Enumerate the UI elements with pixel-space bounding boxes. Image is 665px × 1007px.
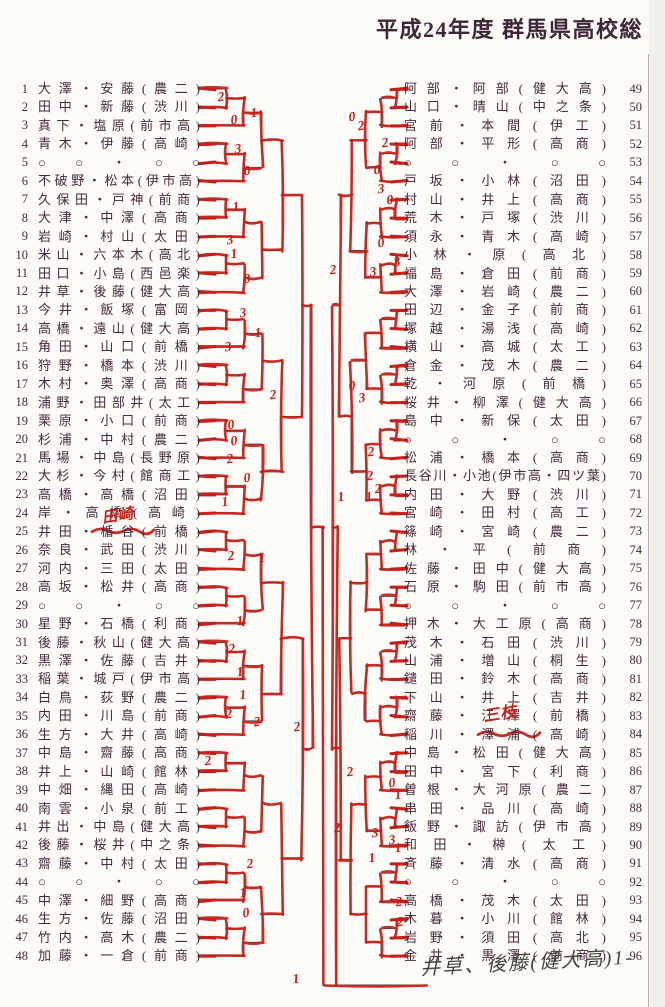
bracket-entry: 11田口・小島(西邑楽) [6,265,200,283]
entry-name: 和田・榊(太工) [404,836,606,854]
entry-number: 61 [614,303,642,318]
bracket-entry: 乾・河原(前橋)65 [404,375,642,393]
entry-name: 大杉・今村(館商工) [38,467,200,485]
bracket-entry: ○○・○○77 [404,597,642,615]
entry-name: 田口・小島(西邑楽) [38,265,200,283]
entry-number: 49 [614,82,642,97]
entry-name: 加藤・一倉(前商) [38,947,200,965]
entry-name: 田中・新藤(渋川) [38,98,200,116]
entry-name: 河内・三田(太田) [38,560,200,578]
entry-name: 高橋・遠山(健大高) [38,320,200,338]
entry-number: 27 [6,561,28,576]
entry-name: 浦野・田部井(太工) [38,394,200,412]
handwritten-score: 3 [377,181,386,198]
entry-name: 高橋・茂木(太田) [404,892,606,910]
handwritten-score: 0 [243,163,252,180]
entry-name: 山浦・増山(桐生) [404,652,606,670]
entry-name: 押木・大工原(高商) [404,615,606,633]
handwritten-score: 2 [226,451,235,468]
entry-number: 1 [6,82,28,97]
scanned-tournament-sheet: 平成24年度 群馬県高校総 1大澤・安藤(農二)2田中・新藤(渋川)3真下・塩原… [0,0,665,1007]
entry-name: 今井・飯塚(富岡) [38,301,200,319]
bracket-entry: 35内田・川島(前商) [6,707,200,725]
entry-name: 大澤・安藤(農二) [38,80,200,98]
handwritten-score: 2 [374,481,383,498]
entry-number: 16 [6,358,28,373]
entry-number: 37 [6,746,28,761]
handwritten-score: 2 [346,764,355,781]
entry-name: 塚越・湯浅(高崎) [404,320,606,338]
bracket-entry: 36生方・大井(高崎) [6,726,200,744]
handwritten-score: 2 [367,444,376,461]
entry-name: 鑓田・鈴木(高商) [404,670,606,688]
entry-name: 阿部・阿部(健大高) [404,80,606,98]
handwritten-score: 3 [224,339,233,356]
entry-number: 88 [614,801,642,816]
entry-number: 65 [614,377,642,392]
entry-number: 14 [6,321,28,336]
handwritten-score: 3 [369,264,378,281]
bracket-entry: 山口・晴山(中之条)50 [404,98,642,116]
entry-name: 狩野・橋本(渋川) [38,357,200,375]
entry-number: 32 [6,653,28,668]
handwritten-score: 2 [227,548,236,565]
entry-name: 大澤・岩崎(農二) [404,283,606,301]
entry-number: 6 [6,174,28,189]
entry-number: 38 [6,764,28,779]
bracket-entry: 茂木・石田(渋川)79 [404,634,642,652]
entry-name: 木暮・小川(館林) [404,910,606,928]
bracket-entry: 3真下・塩原(前市高) [6,117,200,135]
entry-name: 島中・新保(太田) [404,412,606,430]
entry-number: 13 [6,303,28,318]
handwritten-score: 2 [293,719,302,736]
entry-number: 51 [614,118,642,133]
entry-number: 28 [6,580,28,595]
entry-number: 71 [614,487,642,502]
entry-name: 石原・駒田(前市高) [404,578,606,596]
bracket-entry: 押木・大工原(高商)78 [404,615,642,633]
entry-name: 茂木・石田(渋川) [404,634,606,652]
bracket-entry: 下山・井上(吉井)82 [404,689,642,707]
entry-number: 57 [614,229,642,244]
entry-number: 87 [614,783,642,798]
bracket-entry: 1大澤・安藤(農二) [6,80,200,98]
entry-number: 83 [614,709,642,724]
handwritten-score: 0 [377,235,386,252]
bracket-entry: 34白鳥・荻野(農二) [6,689,200,707]
entry-number: 54 [614,174,642,189]
entry-name: 不破野・松本(伊市高) [38,172,200,190]
handwritten-score: 2 [225,706,234,723]
entry-name: 木村・奥澤(高商) [38,375,200,393]
bracket-entry: 2田中・新藤(渋川) [6,98,200,116]
bracket-entry: 47竹内・高木(農二) [6,929,200,947]
bracket-entry: 13今井・飯塚(富岡) [6,301,200,319]
bracket-entry: 阿部・阿部(健大高)49 [404,80,642,98]
bracket-entry: 稲川・澤浦(高崎)84 [404,726,642,744]
bracket-entry: 曽根・大河原(農二)87 [404,781,642,799]
entry-name: 黒澤・佐藤(吉井) [38,652,200,670]
entry-number: 73 [614,524,642,539]
bracket-entry: 21馬場・中島(長野原) [6,449,200,467]
entry-number: 50 [614,100,642,115]
bracket-entry: 島中・新保(太田)67 [404,412,642,430]
handwritten-score: 3 [393,254,402,271]
handwritten-score: 2 [357,118,366,135]
entry-number: 47 [6,930,28,945]
bracket-entry: ○○・○○92 [404,873,642,891]
entry-number: 26 [6,543,28,558]
entry-name: ○○・○○ [38,597,200,615]
bracket-entry: 10米山・六本木(高北) [6,246,200,264]
bracket-entry: 松浦・橋本(高商)69 [404,449,642,467]
entry-number: 7 [6,192,28,207]
entry-number: 85 [614,746,642,761]
entry-number: 56 [614,211,642,226]
entry-name: 馬場・中島(長野原) [38,449,200,467]
bracket-entry: 戸坂・小林(沼田)54 [404,172,642,190]
bracket-entry: 42後藤・桜井(中之条) [6,836,200,854]
entry-number: 84 [614,727,642,742]
entry-number: 40 [6,801,28,816]
entry-number: 89 [614,820,642,835]
entry-name: 戸坂・小林(沼田) [404,172,606,190]
entry-number: 39 [6,783,28,798]
bracket-entry: 宮崎・田村(高工)72 [404,504,642,522]
entry-name: 佐藤・田中(健大高) [404,560,606,578]
handwritten-score: 3 [371,825,380,842]
bracket-entry: 20杉浦・中村(農二) [6,431,200,449]
entry-number: 81 [614,672,642,687]
entry-number: 12 [6,284,28,299]
handwritten-score: 0 [230,433,239,450]
entry-number: 43 [6,856,28,871]
bracket-entry: 阿部・平形(高商)52 [404,135,642,153]
entry-number: 18 [6,395,28,410]
bracket-entry: 31後藤・秋山(健大高) [6,634,200,652]
entry-name: 内田・川島(前商) [38,707,200,725]
bracket-entry: 宮前・本間(伊工)51 [404,117,642,135]
bracket-entry: 大澤・岩崎(農二)60 [404,283,642,301]
entry-number: 31 [6,635,28,650]
entry-name: 星野・石橋(利商) [38,615,200,633]
handwritten-score: 0 [348,378,357,395]
bracket-entry: 佐藤・田中(健大高)75 [404,560,642,578]
entry-number: 15 [6,340,28,355]
entry-number: 30 [6,617,28,632]
entry-name: 稲葉・城戸(伊市高) [38,670,200,688]
bracket-entry: 高橋・茂木(太田)93 [404,892,642,910]
bracket-entry: 26奈良・武田(渋川) [6,541,200,559]
bracket-entry: 23高橋・高橋(沼田) [6,486,200,504]
bracket-entry: ○○・○○68 [404,431,642,449]
handwritten-score: 2 [217,89,226,106]
entry-number: 4 [6,137,28,152]
entry-name: 長谷川・小池(伊市高・四ツ葉) [404,467,606,485]
entry-name: 田辺・金子(前商) [404,301,606,319]
entry-number: 25 [6,524,28,539]
entry-number: 67 [614,414,642,429]
bracket-entry: 15角田・山口(前橋) [6,338,200,356]
entry-name: 小林・原(高北) [404,246,606,264]
entry-number: 24 [6,506,28,521]
entry-number: 66 [614,395,642,410]
entry-number: 29 [6,598,28,613]
bracket-entry: 田中・宮下(利商)86 [404,763,642,781]
bracket-entry: 荒木・戸塚(渋川)56 [404,209,642,227]
entry-number: 77 [614,598,642,613]
bracket-entry: 28高坂・松井(高商) [6,578,200,596]
bracket-entry: 44○○・○○ [6,873,200,891]
bracket-entry: 村山・井上(高商)55 [404,191,642,209]
bracket-entry: 福島・倉田(前商)59 [404,265,642,283]
entry-name: 福島・倉田(前商) [404,265,606,283]
entry-name: 後藤・桜井(中之条) [38,836,200,854]
bracket-entry: 46生方・佐藤(沼田) [6,910,200,928]
handwritten-score: 2 [228,641,237,658]
entry-number: 23 [6,487,28,502]
entry-number: 17 [6,377,28,392]
bracket-entry: 45中澤・細野(高商) [6,892,200,910]
bracket-entry: 田辺・金子(前商)61 [404,301,642,319]
entry-name: 倉金・茂木(農二) [404,357,606,375]
entry-name: 井草・後藤(健大高) [38,283,200,301]
entry-name: 高橋・高橋(沼田) [38,486,200,504]
bracket-entry: 38井上・山崎(館林) [6,763,200,781]
entry-name: 奈良・武田(渋川) [38,541,200,559]
entry-name: 後藤・秋山(健大高) [38,634,200,652]
bracket-entry: 飯野・諏訪(伊市高)89 [404,818,642,836]
entry-number: 10 [6,248,28,263]
bracket-entry: 48加藤・一倉(前商) [6,947,200,965]
bracket-entry: 倉金・茂木(農二)64 [404,357,642,375]
bracket-entry: 須永・青木(高崎)57 [404,228,642,246]
handwritten-score: 2 [396,914,405,931]
entry-name: 桜井・柳澤(健大高) [404,394,606,412]
bracket-entry: 山浦・増山(桐生)80 [404,652,642,670]
entry-name: 竹内・高木(農二) [38,929,200,947]
entry-number: 93 [614,893,642,908]
bracket-entry: 37中島・齋藤(高商) [6,744,200,762]
entry-number: 41 [6,820,28,835]
entry-name: 荒木・戸塚(渋川) [404,209,606,227]
bracket-entry: 小林・原(高北)58 [404,246,642,264]
bracket-entry: 16狩野・橋本(渋川) [6,357,200,375]
entry-number: 79 [614,635,642,650]
handwritten-score: 2 [253,714,262,731]
bracket-entry: 33稲葉・城戸(伊市高) [6,670,200,688]
handwritten-score: 0 [373,162,382,179]
entry-name: 中澤・細野(高商) [38,892,200,910]
entry-number: 20 [6,432,28,447]
handwritten-score: 3 [234,141,243,158]
entry-name: 山口・晴山(中之条) [404,98,606,116]
entry-name: 南雲・小泉(前工) [38,800,200,818]
entry-name: 生方・大井(高崎) [38,726,200,744]
entry-name: 松浦・橋本(高商) [404,449,606,467]
bracket-entry: 桜井・柳澤(健大高)66 [404,394,642,412]
entry-number: 19 [6,414,28,429]
bracket-entry: ○○・○○53 [404,154,642,172]
entry-name: 大津・中澤(高商) [38,209,200,227]
entry-number: 82 [614,690,642,705]
bracket-entry: 串田・品川(高崎)88 [404,800,642,818]
entry-number: 45 [6,893,28,908]
entry-name: 内田・大野(渋川) [404,486,606,504]
entry-name: 生方・佐藤(沼田) [38,910,200,928]
entry-name: 田中・宮下(利商) [404,763,606,781]
bracket-entry: 30星野・石橋(利商) [6,615,200,633]
handwritten-score: 2 [381,135,390,152]
bracket-entry: 9岩崎・村山(太田) [6,228,200,246]
entry-number: 59 [614,266,642,281]
entry-number: 52 [614,137,642,152]
entry-name: 井出・中島(健大高) [38,818,200,836]
entry-name: 村山・井上(高商) [404,191,606,209]
bracket-entry: 29○○・○○ [6,597,200,615]
bracket-entry: 4青木・伊藤(高崎) [6,135,200,153]
entry-name: ○○・○○ [38,873,200,891]
entry-number: 5 [6,155,28,170]
bracket-entry: 27河内・三田(太田) [6,560,200,578]
entry-number: 21 [6,451,28,466]
handwritten-score: 2 [395,894,404,911]
entry-number: 35 [6,709,28,724]
entry-number: 72 [614,506,642,521]
entry-name: 中島・齋藤(高商) [38,744,200,762]
entry-number: 64 [614,358,642,373]
entry-name: 須永・青木(高崎) [404,228,606,246]
bracket-entry: 14高橋・遠山(健大高) [6,320,200,338]
entry-name: 青木・伊藤(高崎) [38,135,200,153]
entry-number: 60 [614,284,642,299]
entry-number: 36 [6,727,28,742]
bracket-entry: 林・平(前商)74 [404,541,642,559]
entry-number: 92 [614,875,642,890]
entry-name: 角田・山口(前橋) [38,338,200,356]
entry-number: 9 [6,229,28,244]
handwritten-score: 0 [243,470,252,487]
entry-number: 86 [614,764,642,779]
bracket-entry: 12井草・後藤(健大高) [6,283,200,301]
handwritten-score: 0 [230,112,239,129]
entry-name: 宮前・本間(伊工) [404,117,606,135]
bracket-entry: 齋藤・江澤(前橋)83 [404,707,642,725]
entry-name: ○○・○○ [38,154,200,172]
handwritten-score: 0 [386,192,395,209]
bracket-entry: 17木村・奥澤(高商) [6,375,200,393]
bracket-entry: 5○○・○○ [6,154,200,172]
handwritten-score: 3 [358,390,367,407]
entry-number: 58 [614,248,642,263]
entry-name: 高坂・松井(高商) [38,578,200,596]
bracket-entry: 長谷川・小池(伊市高・四ツ葉)70 [404,467,642,485]
entry-name: 井田・楯谷(前橋) [38,523,200,541]
bracket-entry: 木暮・小川(館林)94 [404,910,642,928]
bracket-entry: 斉藤・清水(高商)91 [404,855,642,873]
bracket-entry: 43齋藤・中村(太田) [6,855,200,873]
bracket-entry: 32黒澤・佐藤(吉井) [6,652,200,670]
entry-name: 宮崎・田村(高工) [404,504,606,522]
bracket-entry: 8大津・中澤(高商) [6,209,200,227]
bracket-entry: 塚越・湯浅(高崎)62 [404,320,642,338]
entry-name: 篠崎・宮崎(農二) [404,523,606,541]
handwritten-score: 2 [329,262,338,279]
bracket-entry: 横山・高城(太工)63 [404,338,642,356]
entry-number: 70 [614,469,642,484]
entry-number: 78 [614,617,642,632]
entry-number: 62 [614,321,642,336]
entry-name: 横山・高城(太工) [404,338,606,356]
entry-name: 真下・塩原(前市高) [38,117,200,135]
entry-name: 久保田・戸神(前商) [38,191,200,209]
entry-number: 69 [614,451,642,466]
entry-name: 斉藤・清水(高商) [404,855,606,873]
entry-number: 94 [614,912,642,927]
entry-number: 22 [6,469,28,484]
bracket-entry: 和田・榊(太工)90 [404,836,642,854]
bracket-entry: 篠崎・宮崎(農二)73 [404,523,642,541]
bracket-entry: 40南雲・小泉(前工) [6,800,200,818]
bracket-entry: 39中畑・縄田(高崎) [6,781,200,799]
handwritten-score: 2 [333,820,342,837]
handwritten-score: 0 [227,417,236,434]
entry-name: ○○・○○ [404,431,606,449]
entry-number: 76 [614,580,642,595]
entry-number: 46 [6,912,28,927]
handwritten-score: 0 [348,109,357,126]
bracket-entry: 鑓田・鈴木(高商)81 [404,670,642,688]
entry-number: 74 [614,543,642,558]
entry-name: 阿部・平形(高商) [404,135,606,153]
entry-name: 白鳥・荻野(農二) [38,689,200,707]
entry-name: 栗原・小口(前商) [38,412,200,430]
entry-number: 63 [614,340,642,355]
bracket-entry: 41井出・中島(健大高) [6,818,200,836]
handwritten-score: 0 [242,905,251,922]
entry-name: 齋藤・中村(太田) [38,855,200,873]
entry-number: 90 [614,838,642,853]
entry-number: 48 [6,949,28,964]
entry-number: 68 [614,432,642,447]
entry-name: 曽根・大河原(農二) [404,781,606,799]
entry-name: 井上・山崎(館林) [38,763,200,781]
entry-name: ○○・○○ [404,597,606,615]
entry-number: 80 [614,653,642,668]
handwritten-score: 2 [246,856,255,873]
entry-number: 2 [6,100,28,115]
entry-name: 中畑・縄田(高崎) [38,781,200,799]
entry-name: 乾・河原(前橋) [404,375,606,393]
entry-number: 44 [6,875,28,890]
entry-number: 8 [6,211,28,226]
entry-number: 3 [6,118,28,133]
entry-number: 55 [614,192,642,207]
bracket-entry: 石原・駒田(前市高)76 [404,578,642,596]
entry-number: 75 [614,561,642,576]
entry-number: 11 [6,266,28,281]
entry-number: 33 [6,672,28,687]
entry-name: ○○・○○ [404,154,606,172]
entry-name: 岩崎・村山(太田) [38,228,200,246]
bracket-entry: 6不破野・松本(伊市高) [6,172,200,190]
entry-name: 杉浦・中村(農二) [38,431,200,449]
entry-name: 林・平(前商) [404,541,606,559]
entry-number: 53 [614,155,642,170]
entry-name: ○○・○○ [404,873,606,891]
bracket-entry: 19栗原・小口(前商) [6,412,200,430]
